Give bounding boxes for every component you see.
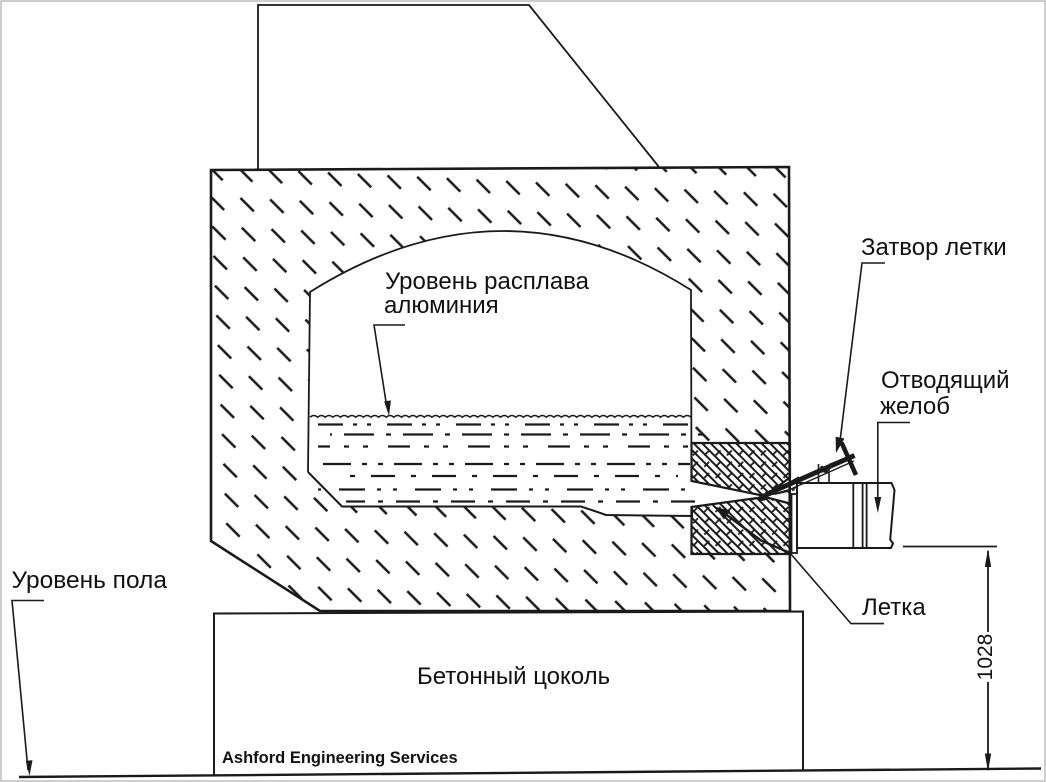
svg-text:Затвор летки: Затвор летки: [861, 234, 1007, 261]
svg-text:Уровень расплава: Уровень расплава: [385, 268, 590, 295]
svg-text:1028: 1028: [974, 634, 997, 681]
svg-text:Бетонный цоколь: Бетонный цоколь: [417, 663, 610, 690]
svg-text:алюминия: алюминия: [384, 292, 499, 319]
svg-text:Летка: Летка: [862, 594, 926, 621]
svg-text:Ashford Engineering Services: Ashford Engineering Services: [222, 749, 458, 767]
svg-text:желоб: желоб: [880, 393, 950, 420]
svg-text:Уровень пола: Уровень пола: [12, 567, 168, 594]
svg-text:Отводящий: Отводящий: [881, 367, 1010, 394]
